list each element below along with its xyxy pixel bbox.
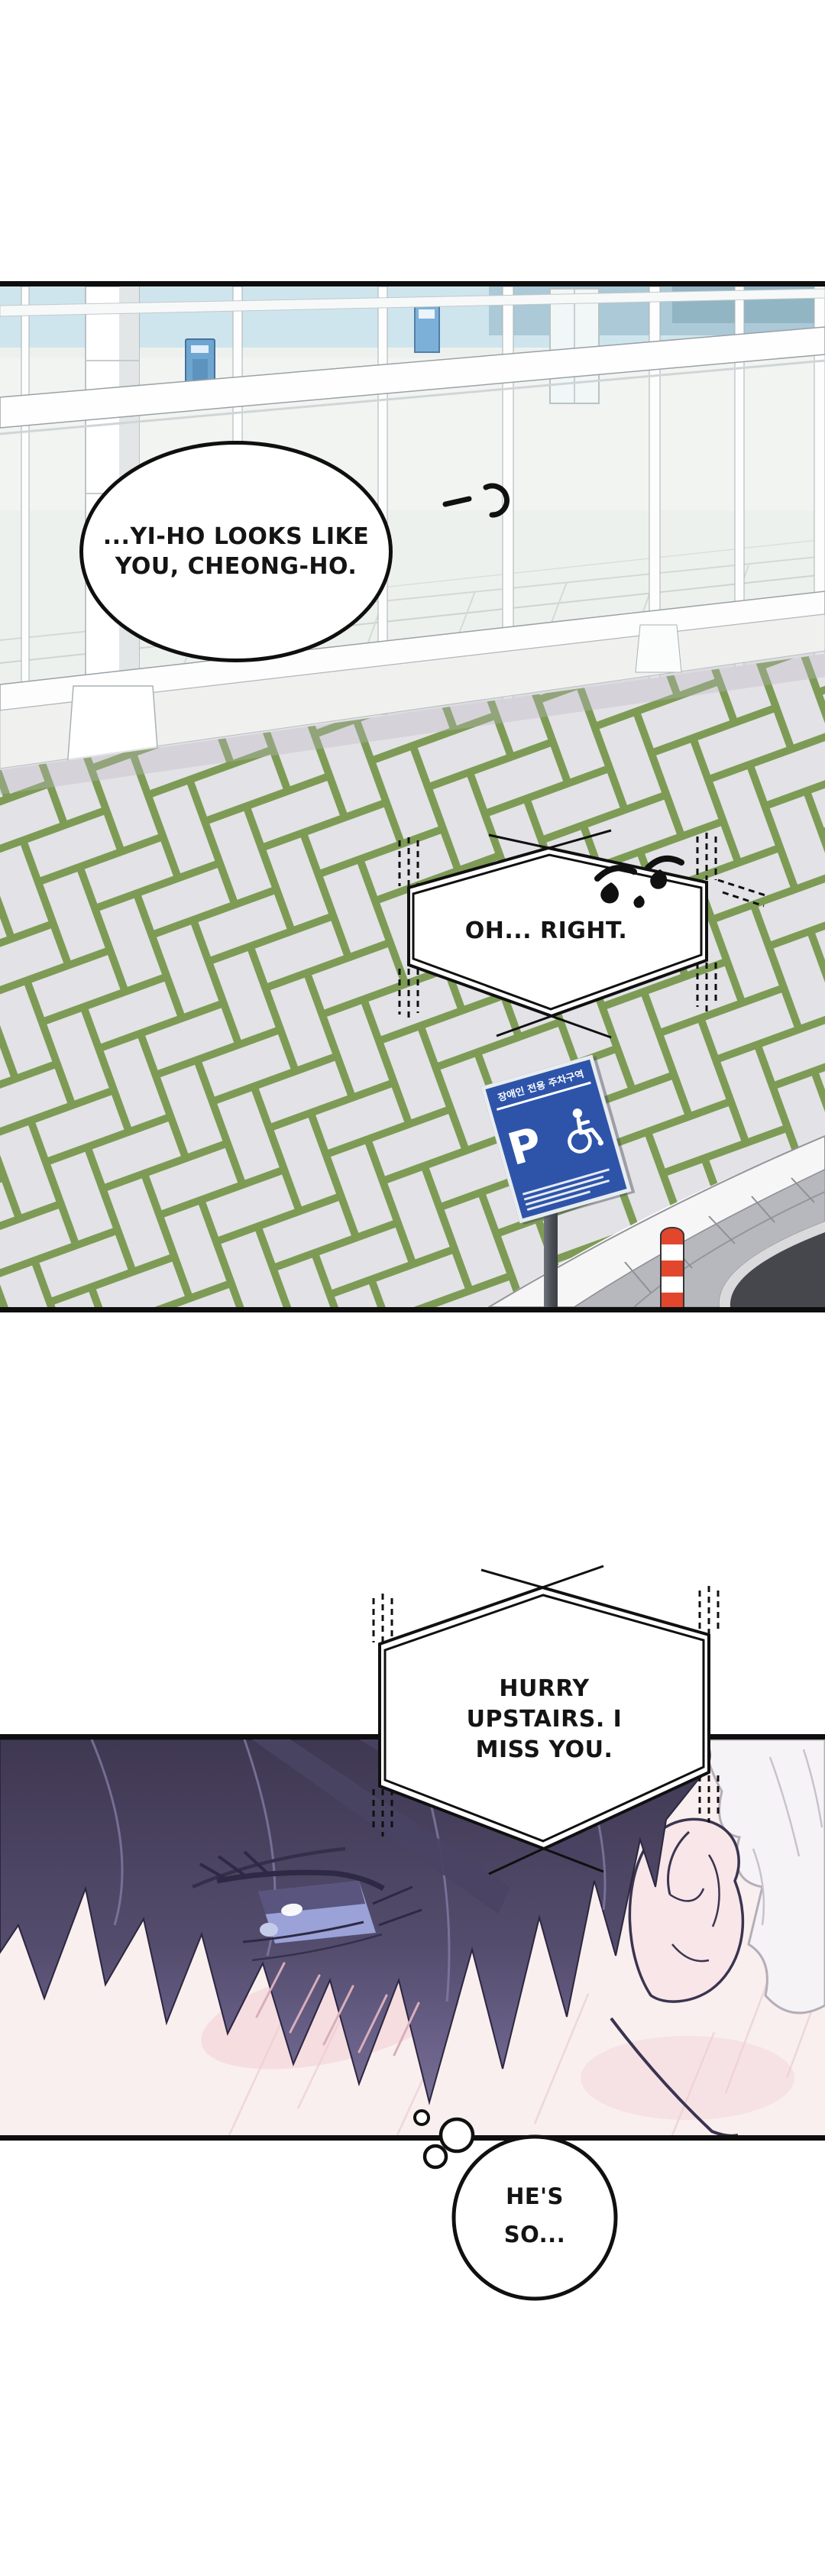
column-base-far: [636, 625, 681, 672]
phone-line: MISS YOU.: [476, 1735, 613, 1765]
wheelchair-icon: [550, 1101, 609, 1160]
thought-trail-dot: [415, 2111, 429, 2125]
emanata-mark-icon: [439, 470, 523, 531]
thought-bubble-text: HE'S SO...: [458, 2173, 611, 2257]
panel-border: [0, 281, 825, 286]
thought-line: HE'S: [506, 2177, 564, 2215]
speech-line: ...YI-HO: [103, 523, 205, 550]
phone-line: UPSTAIRS. I: [467, 1704, 623, 1735]
phone-line: OH... RIGHT.: [465, 917, 628, 944]
thought-line: SO...: [504, 2215, 565, 2254]
phone-bubble-text: OH... RIGHT.: [416, 911, 676, 950]
phone-bubble-text: HURRY UPSTAIRS. I MISS YOU.: [412, 1664, 676, 1775]
phone-line: HURRY: [499, 1674, 589, 1704]
speech-line: CHEONG-HO.: [188, 553, 357, 580]
speech-bubble: ...YI-HO LOOKS LIKE YOU, CHEONG-HO.: [79, 441, 393, 662]
panel-border: [0, 1307, 825, 1312]
panel-exterior: [0, 286, 825, 1307]
comic-page: ...YI-HO LOOKS LIKE YOU, CHEONG-HO.: [0, 0, 825, 2576]
parking-letter: P: [503, 1120, 547, 1171]
banner-stand-icon: [415, 305, 439, 352]
exterior-scene: [0, 286, 825, 1307]
traffic-bollard: [660, 1227, 684, 1307]
interior-door: [550, 289, 599, 403]
